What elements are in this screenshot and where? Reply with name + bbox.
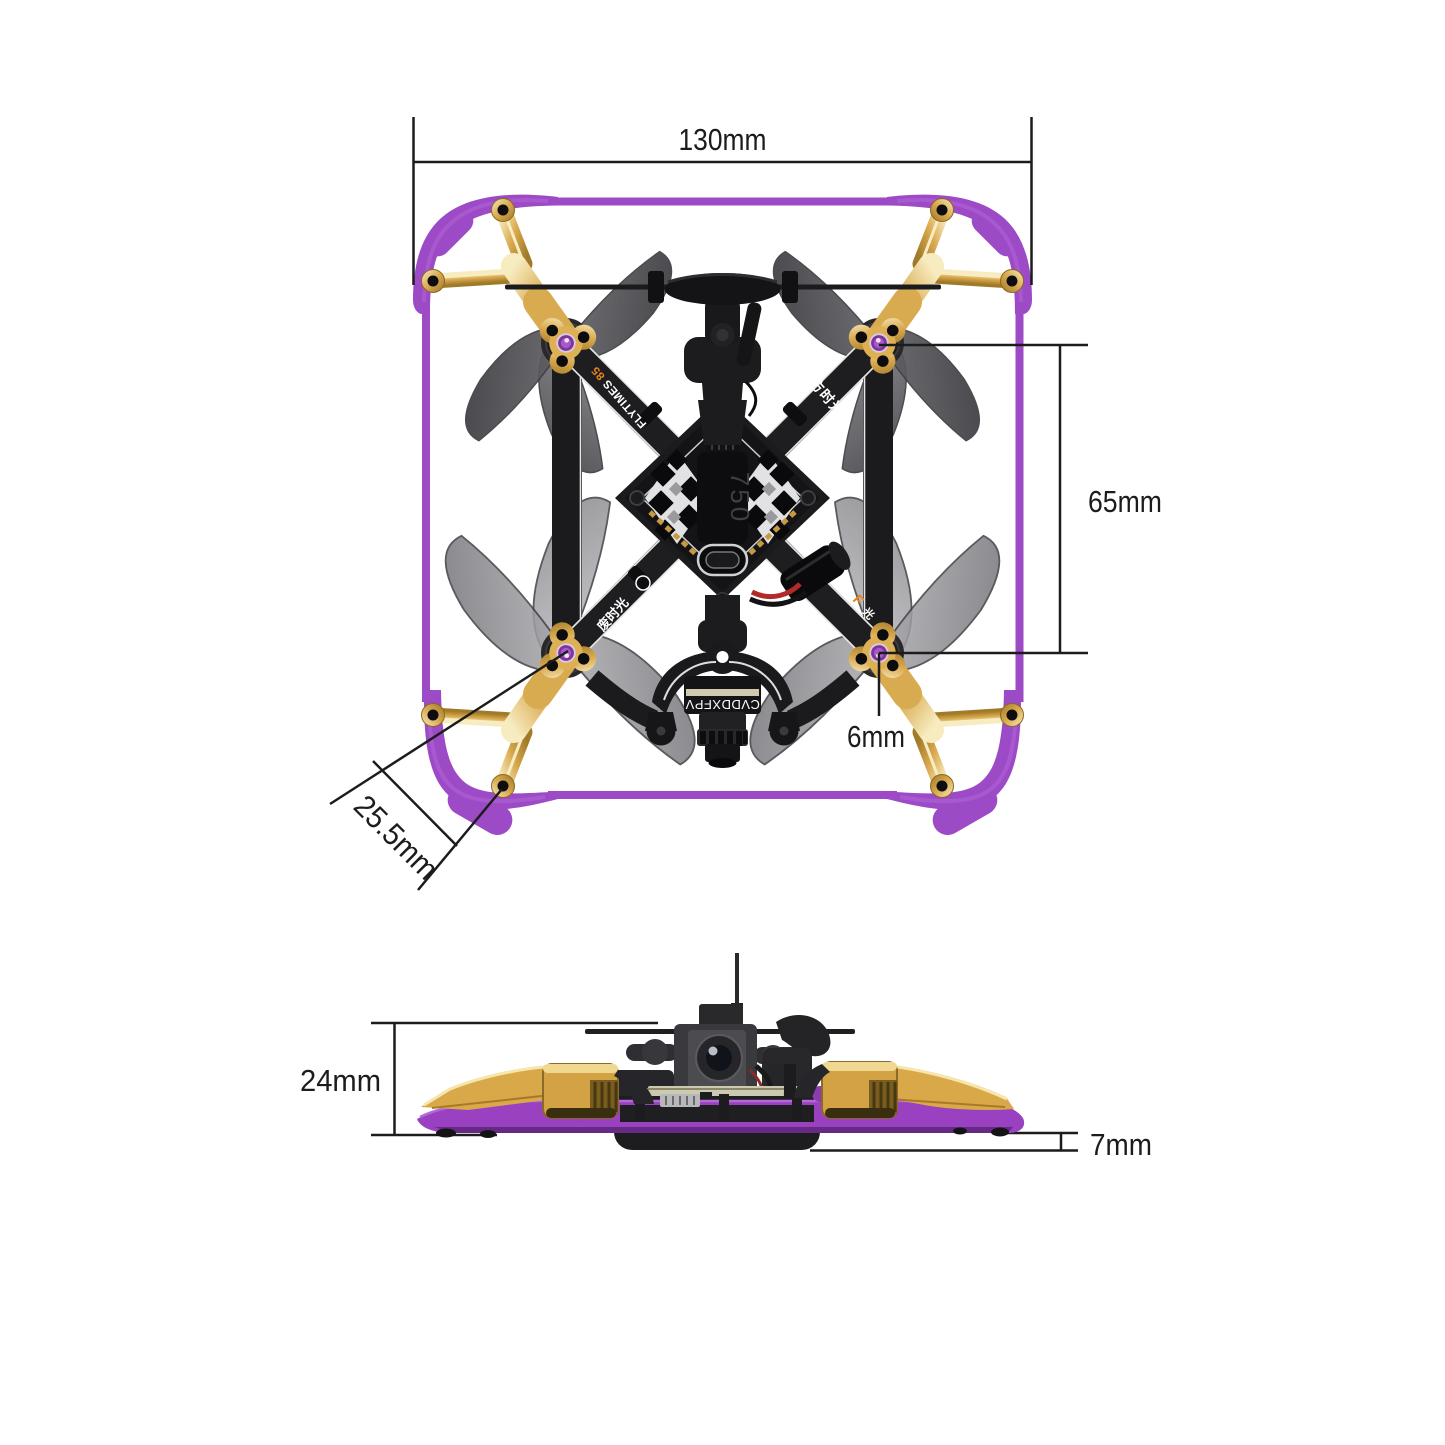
svg-text:24mm: 24mm: [300, 1063, 381, 1098]
svg-text:130mm: 130mm: [679, 122, 767, 157]
svg-text:750: 750: [725, 472, 755, 524]
svg-text:CVDDXFPV: CVDDXFPV: [685, 697, 760, 712]
svg-text:6mm: 6mm: [847, 719, 905, 754]
svg-text:65mm: 65mm: [1088, 484, 1162, 519]
svg-text:7mm: 7mm: [1090, 1127, 1152, 1162]
